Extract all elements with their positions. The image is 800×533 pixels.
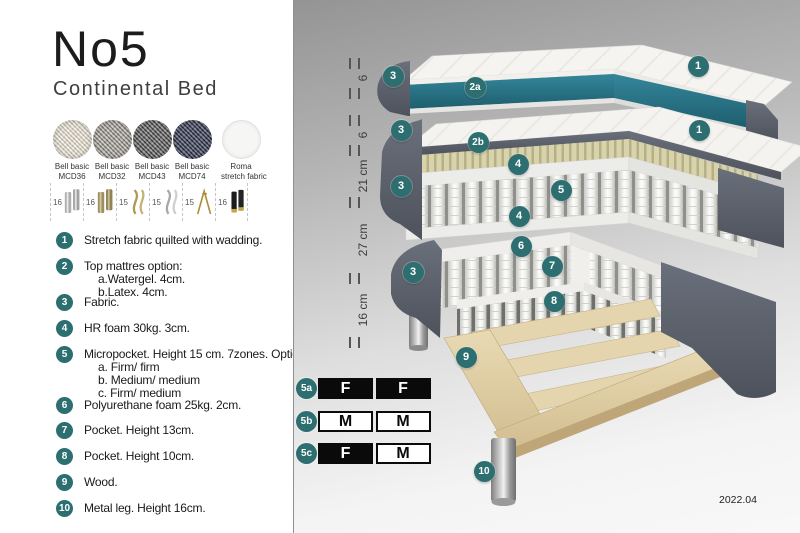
diagram-badge-6: 6 bbox=[511, 236, 532, 257]
spec-item-4: 4HR foam 30kg. 3cm. bbox=[56, 320, 298, 337]
ruler-label: 21 cm bbox=[356, 154, 372, 198]
spec-item-2: 2Top mattres option:a.Watergel. 4cm.b.La… bbox=[56, 258, 298, 299]
ruler-tick bbox=[349, 273, 351, 284]
product-sheet: No5 Continental Bed Bell basicMCD36Bell … bbox=[0, 0, 800, 533]
spec-item-6: 6Polyurethane foam 25kg. 2cm. bbox=[56, 397, 298, 414]
spec-line: Polyurethane foam 25kg. 2cm. bbox=[84, 399, 298, 412]
ruler-tick bbox=[349, 88, 351, 99]
spec-item-1: 1Stretch fabric quilted with wadding. bbox=[56, 232, 298, 249]
diagram-badge-4: 4 bbox=[509, 206, 530, 227]
diagram-badge-10: 10 bbox=[474, 461, 495, 482]
ruler-tick bbox=[358, 273, 360, 284]
firmness-row-label-5a: 5a bbox=[296, 378, 317, 399]
spec-number-badge: 8 bbox=[56, 448, 73, 465]
firmness-cell-5b-1: M bbox=[318, 411, 373, 432]
diagram-badge-3: 3 bbox=[383, 66, 404, 87]
diagram-badge-3: 3 bbox=[403, 262, 424, 283]
diagram-badge-2a: 2a bbox=[465, 77, 486, 98]
spec-number-badge: 7 bbox=[56, 422, 73, 439]
diagram-badge-1: 1 bbox=[689, 120, 710, 141]
diagram-badge-3: 3 bbox=[391, 176, 412, 197]
firmness-row-label-5b: 5b bbox=[296, 411, 317, 432]
spec-number-badge: 10 bbox=[56, 500, 73, 517]
spec-item-5: 5Micropocket. Height 15 cm. 7zones. Opti… bbox=[56, 346, 298, 400]
spec-line: Pocket. Height 10cm. bbox=[84, 450, 298, 463]
info-panel: No5 Continental Bed Bell basicMCD36Bell … bbox=[0, 0, 293, 533]
spec-number-badge: 4 bbox=[56, 320, 73, 337]
ruler-tick bbox=[349, 337, 351, 348]
spec-item-8: 8Pocket. Height 10cm. bbox=[56, 448, 298, 465]
diagram-badge-3: 3 bbox=[391, 120, 412, 141]
spec-number-badge: 5 bbox=[56, 346, 73, 363]
spec-line: Wood. bbox=[84, 476, 298, 489]
spec-list: 1Stretch fabric quilted with wadding.2To… bbox=[0, 0, 293, 533]
ruler-tick bbox=[358, 337, 360, 348]
ruler-label: 27 cm bbox=[356, 218, 372, 262]
spec-line: Metal leg. Height 16cm. bbox=[84, 502, 298, 515]
spec-number-badge: 6 bbox=[56, 397, 73, 414]
diagram-badge-4: 4 bbox=[508, 154, 529, 175]
ruler-tick bbox=[349, 197, 351, 208]
spec-item-9: 9Wood. bbox=[56, 474, 298, 491]
diagram-badge-9: 9 bbox=[456, 347, 477, 368]
version-stamp: 2022.04 bbox=[719, 494, 757, 506]
spec-line: Fabric. bbox=[84, 296, 298, 309]
ruler-tick bbox=[349, 145, 351, 156]
diagram-badge-1: 1 bbox=[688, 56, 709, 77]
spec-item-10: 10Metal leg. Height 16cm. bbox=[56, 500, 298, 517]
diagram-badge-5: 5 bbox=[551, 180, 572, 201]
spec-number-badge: 3 bbox=[56, 294, 73, 311]
ruler-label: 6 bbox=[356, 113, 372, 157]
firmness-cell-5a-2: F bbox=[376, 378, 431, 399]
firmness-cell-5c-2: M bbox=[376, 443, 431, 464]
ruler-tick bbox=[349, 115, 351, 126]
ruler-label: 16 cm bbox=[356, 288, 372, 332]
spec-number-badge: 9 bbox=[56, 474, 73, 491]
middle-mattress bbox=[380, 107, 800, 259]
spec-item-3: 3Fabric. bbox=[56, 294, 298, 311]
spec-number-badge: 1 bbox=[56, 232, 73, 249]
diagram-badge-8: 8 bbox=[544, 291, 565, 312]
ruler-label: 6 bbox=[356, 56, 372, 100]
spec-line: HR foam 30kg. 3cm. bbox=[84, 322, 298, 335]
spec-number-badge: 2 bbox=[56, 258, 73, 275]
ruler-tick bbox=[358, 197, 360, 208]
spec-line: Stretch fabric quilted with wadding. bbox=[84, 234, 298, 247]
spec-item-7: 7Pocket. Height 13cm. bbox=[56, 422, 298, 439]
diagram-badge-2b: 2b bbox=[468, 132, 489, 153]
firmness-row-label-5c: 5c bbox=[296, 443, 317, 464]
diagram-panel: 6621 cm27 cm16 cm 32a132b145436738910 5a… bbox=[293, 0, 800, 533]
ruler-tick bbox=[349, 58, 351, 69]
spec-line: Pocket. Height 13cm. bbox=[84, 424, 298, 437]
firmness-cell-5a-1: F bbox=[318, 378, 373, 399]
firmness-cell-5b-2: M bbox=[376, 411, 431, 432]
firmness-cell-5c-1: F bbox=[318, 443, 373, 464]
diagram-badge-7: 7 bbox=[542, 256, 563, 277]
